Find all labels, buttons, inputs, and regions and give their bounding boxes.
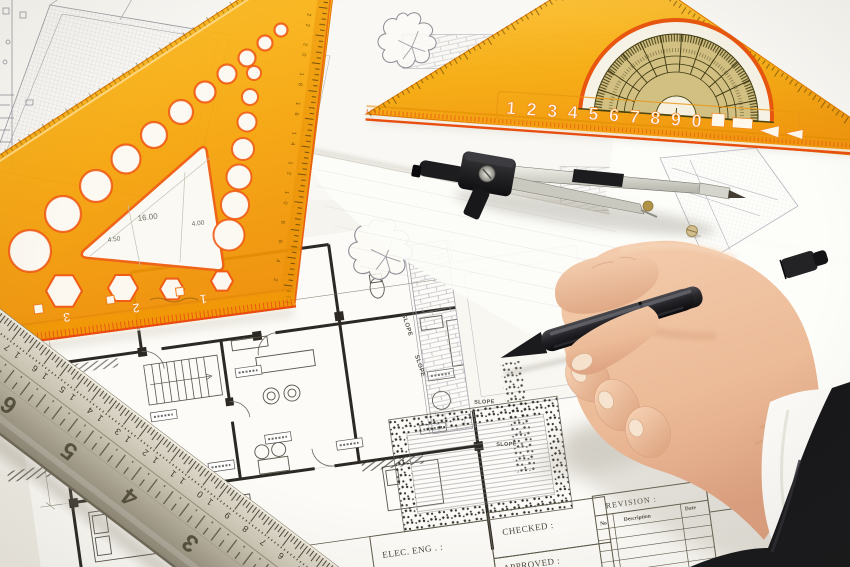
vignette-overlay [0,0,850,567]
scene-canvas: SLOPE SLOPE SLOPE SLOPE ELEC. ENG . : CH… [0,0,850,567]
drafting-scene: SLOPE SLOPE SLOPE SLOPE ELEC. ENG . : CH… [0,0,850,567]
